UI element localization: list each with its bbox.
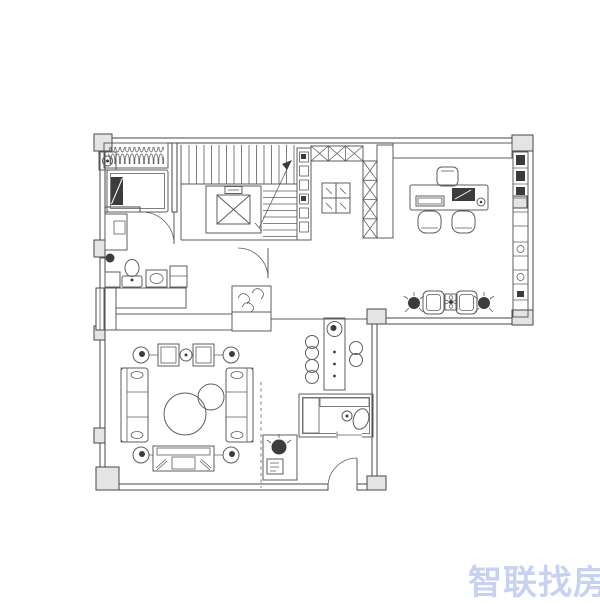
tall-cabinet: [170, 266, 187, 287]
side-bookshelf: [377, 145, 393, 238]
left-wall-window: [96, 288, 104, 330]
shoe-cabinet-upper: [116, 288, 186, 308]
flower-table: [445, 294, 458, 310]
living-room: [121, 344, 253, 471]
bedroom-swing-door: [142, 212, 174, 244]
task-chair: [437, 167, 458, 186]
console-cabinet: [263, 434, 297, 480]
lounge-row: [404, 291, 494, 314]
visitor-chair-1: [418, 211, 441, 233]
desk-set: [410, 167, 488, 233]
floor-lamp-2: [223, 347, 239, 363]
storage-run: [104, 286, 271, 331]
page: { "watermark": { "text": "智联找房" }, "pale…: [0, 0, 600, 598]
shoe-cabinet-lower: [116, 314, 232, 330]
floor-lamp-4: [223, 447, 239, 463]
staircase: [181, 145, 311, 278]
floor-lamp-1: [133, 347, 149, 363]
hall-shelf: [297, 148, 311, 240]
toilet: [122, 260, 142, 288]
right-bookshelf: [513, 152, 528, 317]
sofa-left: [121, 368, 148, 442]
stair-treads-up: [189, 145, 294, 184]
dining-chair-2: [306, 360, 319, 384]
stair-treads-side: [263, 191, 297, 237]
low-cabinet: [105, 272, 120, 287]
tv-bench: [153, 446, 214, 471]
bedroom-partition-wall: [172, 143, 177, 212]
vanity: [146, 270, 167, 287]
shoe-cabinet-side: [104, 288, 116, 330]
console-plant: [267, 434, 291, 455]
top-bookshelf: [393, 143, 512, 158]
keyboard: [416, 196, 444, 206]
powder-area: [105, 260, 187, 288]
dining-set: [306, 318, 363, 390]
round-coffee-table-large: [164, 393, 206, 435]
floorplan-svg: [0, 0, 600, 598]
wardrobe-hanger-rail: [104, 143, 168, 168]
sofa-right: [226, 368, 253, 442]
floor-lamp-3: [133, 447, 149, 463]
entry-door: [328, 458, 357, 487]
plant-1: [404, 292, 424, 312]
wash-basin: [351, 407, 372, 432]
visitor-chair-2: [452, 211, 475, 233]
armchair-2: [193, 344, 214, 366]
table-plant: [327, 322, 342, 337]
dining-chair-3: [350, 342, 363, 367]
hall-door: [238, 248, 268, 278]
watermark: 智联找房: [468, 555, 600, 604]
bedroom: [99, 143, 177, 263]
tea-table: [180, 349, 192, 361]
bathroom: [299, 394, 373, 439]
dresser: [105, 214, 127, 250]
vanity-hatch-band: [320, 398, 369, 407]
coat-cabinet: [232, 286, 271, 331]
shower: [303, 398, 319, 433]
elevator: [206, 186, 261, 233]
lounge-chair-1: [423, 291, 444, 314]
bed: [107, 170, 168, 212]
armchair-1: [158, 344, 179, 366]
dining-chair-1: [306, 336, 319, 360]
display-cabinet: [322, 183, 350, 213]
lounge-chair-2: [456, 291, 477, 314]
round-coffee-table-small: [198, 384, 224, 410]
